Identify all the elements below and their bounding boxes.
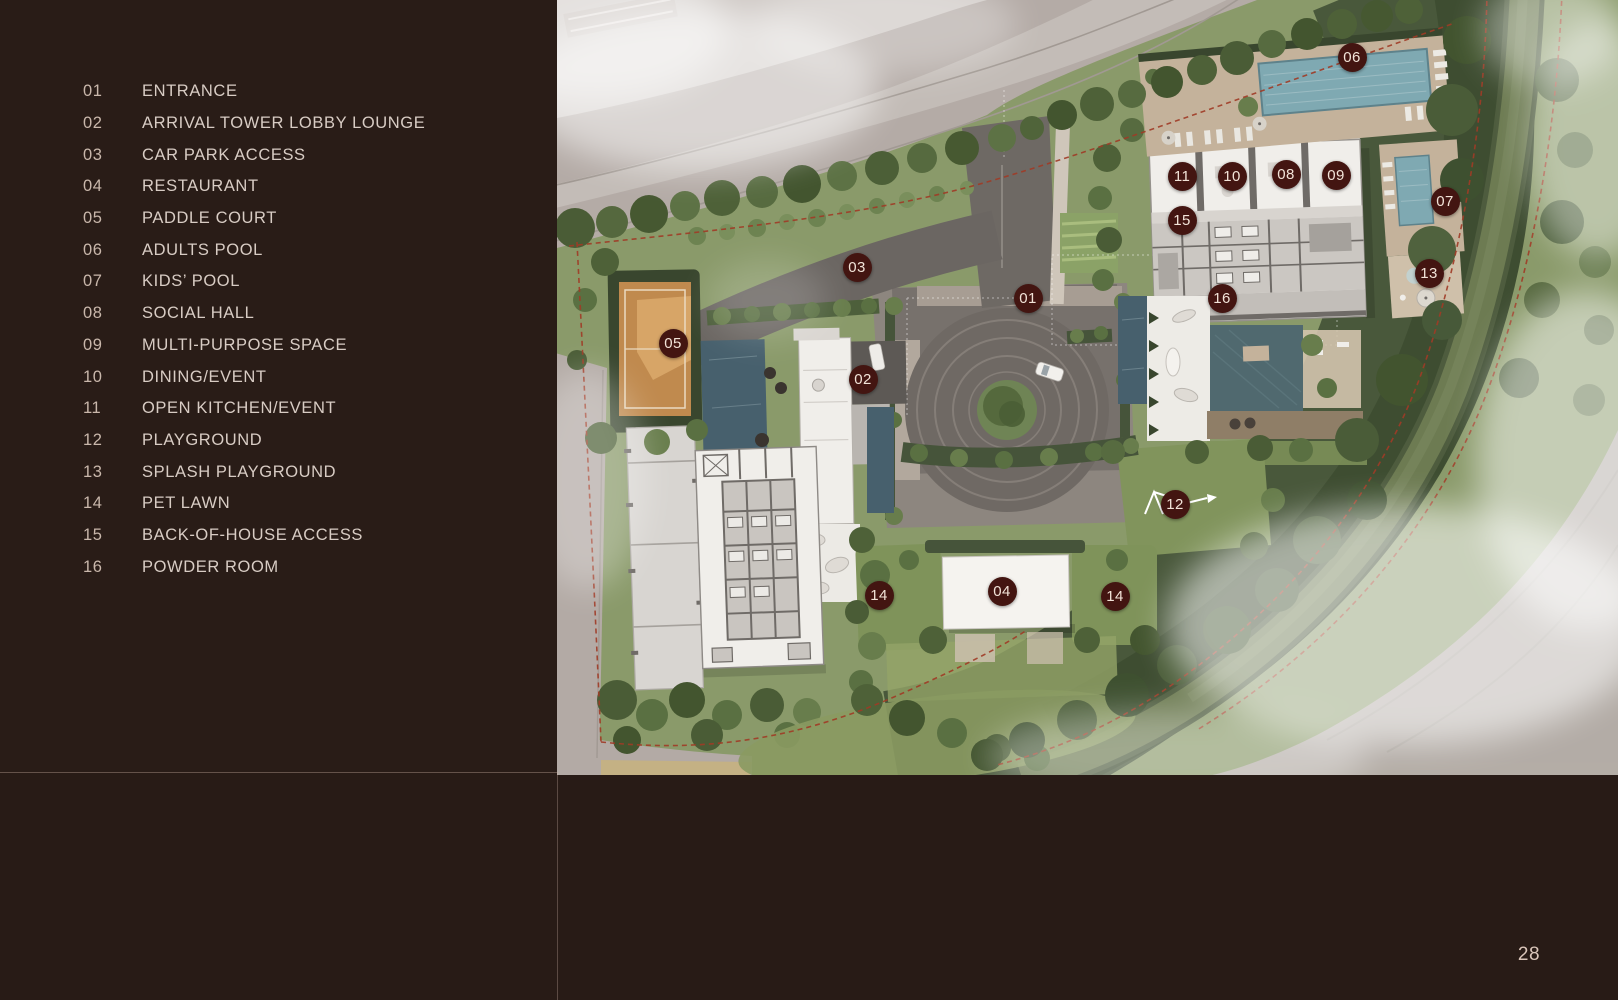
map-marker: 08 bbox=[1272, 160, 1301, 189]
legend-item-number: 01 bbox=[83, 82, 142, 101]
map-marker: 10 bbox=[1218, 162, 1247, 191]
legend-item-number: 08 bbox=[83, 304, 142, 323]
legend-item: 02ARRIVAL TOWER LOBBY LOUNGE bbox=[83, 108, 425, 140]
legend-item-label: ADULTS POOL bbox=[142, 241, 263, 260]
brochure-page: 01ENTRANCE02ARRIVAL TOWER LOBBY LOUNGE03… bbox=[0, 0, 1618, 1000]
legend-item-number: 11 bbox=[83, 399, 142, 418]
legend-item-number: 05 bbox=[83, 209, 142, 228]
legend-item-label: POWDER ROOM bbox=[142, 558, 279, 577]
legend-item-number: 07 bbox=[83, 272, 142, 291]
legend-item-label: RESTAURANT bbox=[142, 177, 259, 196]
map-marker: 11 bbox=[1168, 162, 1197, 191]
legend-item-label: MULTI-PURPOSE SPACE bbox=[142, 336, 347, 355]
map-marker: 04 bbox=[988, 577, 1017, 606]
site-plan-map: 0611100809071513030116050212140414 bbox=[557, 0, 1618, 775]
map-marker: 06 bbox=[1338, 43, 1367, 72]
legend-item-number: 16 bbox=[83, 558, 142, 577]
legend-item: 13SPLASH PLAYGROUND bbox=[83, 456, 425, 488]
map-marker: 05 bbox=[659, 329, 688, 358]
legend-item: 09MULTI-PURPOSE SPACE bbox=[83, 330, 425, 362]
legend-item-number: 14 bbox=[83, 494, 142, 513]
legend-item-label: ARRIVAL TOWER LOBBY LOUNGE bbox=[142, 114, 425, 133]
legend-item: 16POWDER ROOM bbox=[83, 551, 425, 583]
legend-item-number: 10 bbox=[83, 368, 142, 387]
map-marker: 07 bbox=[1431, 187, 1460, 216]
legend-item: 06ADULTS POOL bbox=[83, 234, 425, 266]
legend-item: 05PADDLE COURT bbox=[83, 203, 425, 235]
legend-item-number: 06 bbox=[83, 241, 142, 260]
legend-item-number: 03 bbox=[83, 146, 142, 165]
legend-item-label: PADDLE COURT bbox=[142, 209, 277, 228]
map-marker: 02 bbox=[849, 365, 878, 394]
legend-sidebar: 01ENTRANCE02ARRIVAL TOWER LOBBY LOUNGE03… bbox=[0, 0, 557, 772]
map-marker: 14 bbox=[865, 581, 894, 610]
legend-item-label: OPEN KITCHEN/EVENT bbox=[142, 399, 336, 418]
legend-item-label: PLAYGROUND bbox=[142, 431, 262, 450]
page-number: 28 bbox=[1503, 944, 1555, 966]
legend-item-label: KIDS’ POOL bbox=[142, 272, 240, 291]
legend-item-number: 09 bbox=[83, 336, 142, 355]
map-marker: 13 bbox=[1415, 259, 1444, 288]
map-marker: 01 bbox=[1014, 284, 1043, 313]
map-marker-layer: 0611100809071513030116050212140414 bbox=[557, 0, 1618, 775]
legend-item: 04RESTAURANT bbox=[83, 171, 425, 203]
legend-item-number: 02 bbox=[83, 114, 142, 133]
legend-item-number: 15 bbox=[83, 526, 142, 545]
legend-item: 03CAR PARK ACCESS bbox=[83, 139, 425, 171]
legend-item-label: SOCIAL HALL bbox=[142, 304, 254, 323]
legend-item-number: 12 bbox=[83, 431, 142, 450]
map-marker: 09 bbox=[1322, 161, 1351, 190]
legend-item: 12PLAYGROUND bbox=[83, 425, 425, 457]
legend-item: 11OPEN KITCHEN/EVENT bbox=[83, 393, 425, 425]
map-marker: 14 bbox=[1101, 582, 1130, 611]
legend-item-label: ENTRANCE bbox=[142, 82, 238, 101]
legend-item: 01ENTRANCE bbox=[83, 76, 425, 108]
map-marker: 16 bbox=[1208, 284, 1237, 313]
legend-item-label: SPLASH PLAYGROUND bbox=[142, 463, 336, 482]
vertical-divider bbox=[557, 772, 558, 1000]
map-marker: 03 bbox=[843, 253, 872, 282]
legend-item: 14PET LAWN bbox=[83, 488, 425, 520]
legend-item: 07KIDS’ POOL bbox=[83, 266, 425, 298]
legend-item: 10DINING/EVENT bbox=[83, 361, 425, 393]
legend-item-number: 13 bbox=[83, 463, 142, 482]
map-marker: 12 bbox=[1161, 490, 1190, 519]
legend-item: 15BACK-OF-HOUSE ACCESS bbox=[83, 520, 425, 552]
legend-item-label: CAR PARK ACCESS bbox=[142, 146, 306, 165]
map-marker: 15 bbox=[1168, 206, 1197, 235]
legend-item-label: BACK-OF-HOUSE ACCESS bbox=[142, 526, 363, 545]
amenity-legend: 01ENTRANCE02ARRIVAL TOWER LOBBY LOUNGE03… bbox=[83, 76, 425, 583]
legend-item-label: PET LAWN bbox=[142, 494, 230, 513]
legend-item-label: DINING/EVENT bbox=[142, 368, 267, 387]
horizontal-divider bbox=[0, 772, 557, 773]
legend-item: 08SOCIAL HALL bbox=[83, 298, 425, 330]
legend-item-number: 04 bbox=[83, 177, 142, 196]
